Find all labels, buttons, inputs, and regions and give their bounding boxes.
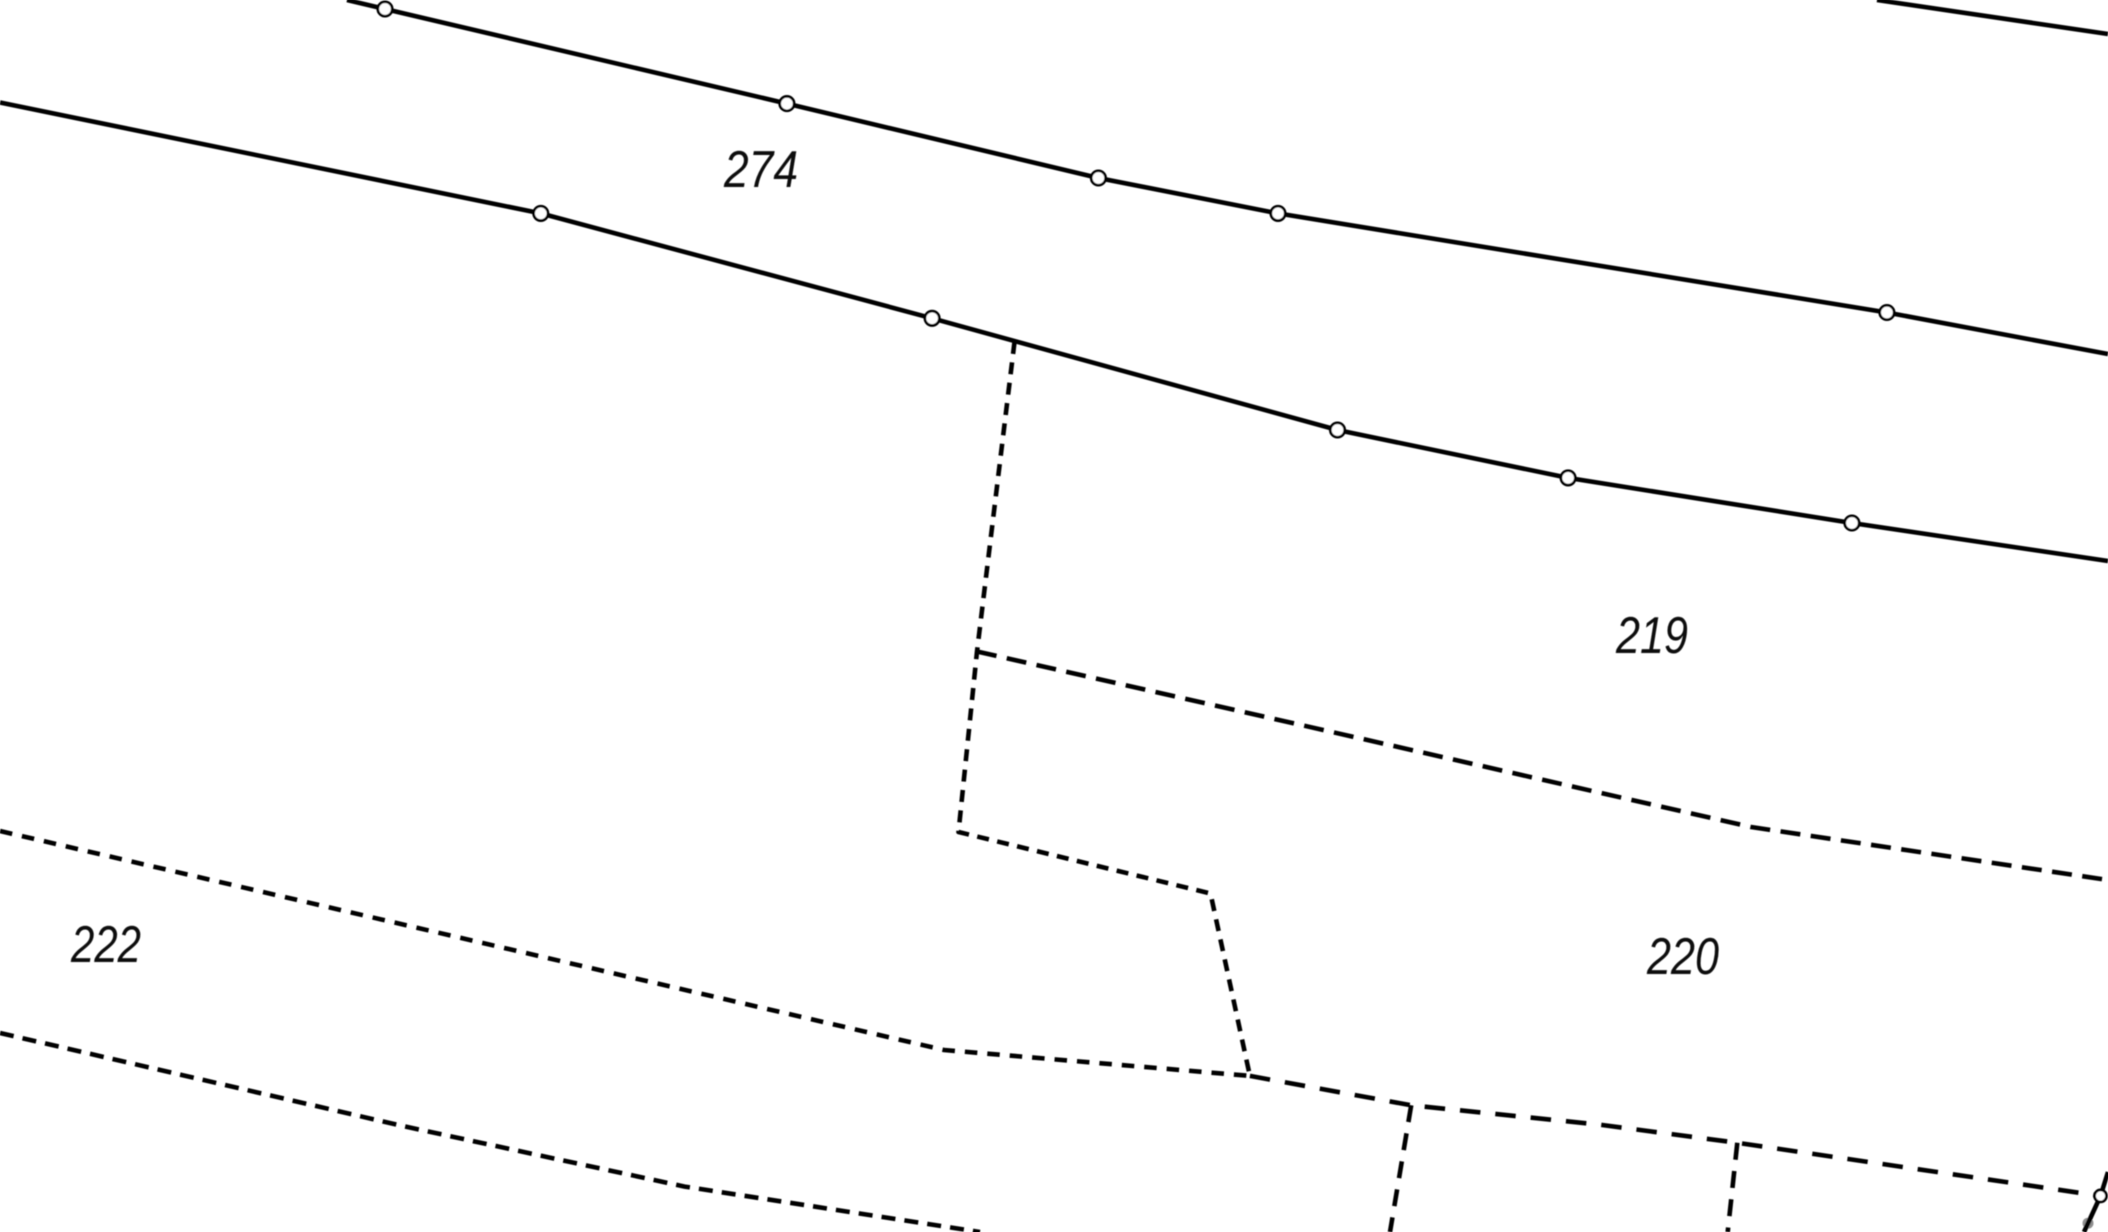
svg-text:219: 219 — [1615, 607, 1688, 665]
svg-text:222: 222 — [70, 916, 141, 974]
svg-text:274: 274 — [723, 141, 798, 199]
svg-text:220: 220 — [1646, 928, 1719, 986]
